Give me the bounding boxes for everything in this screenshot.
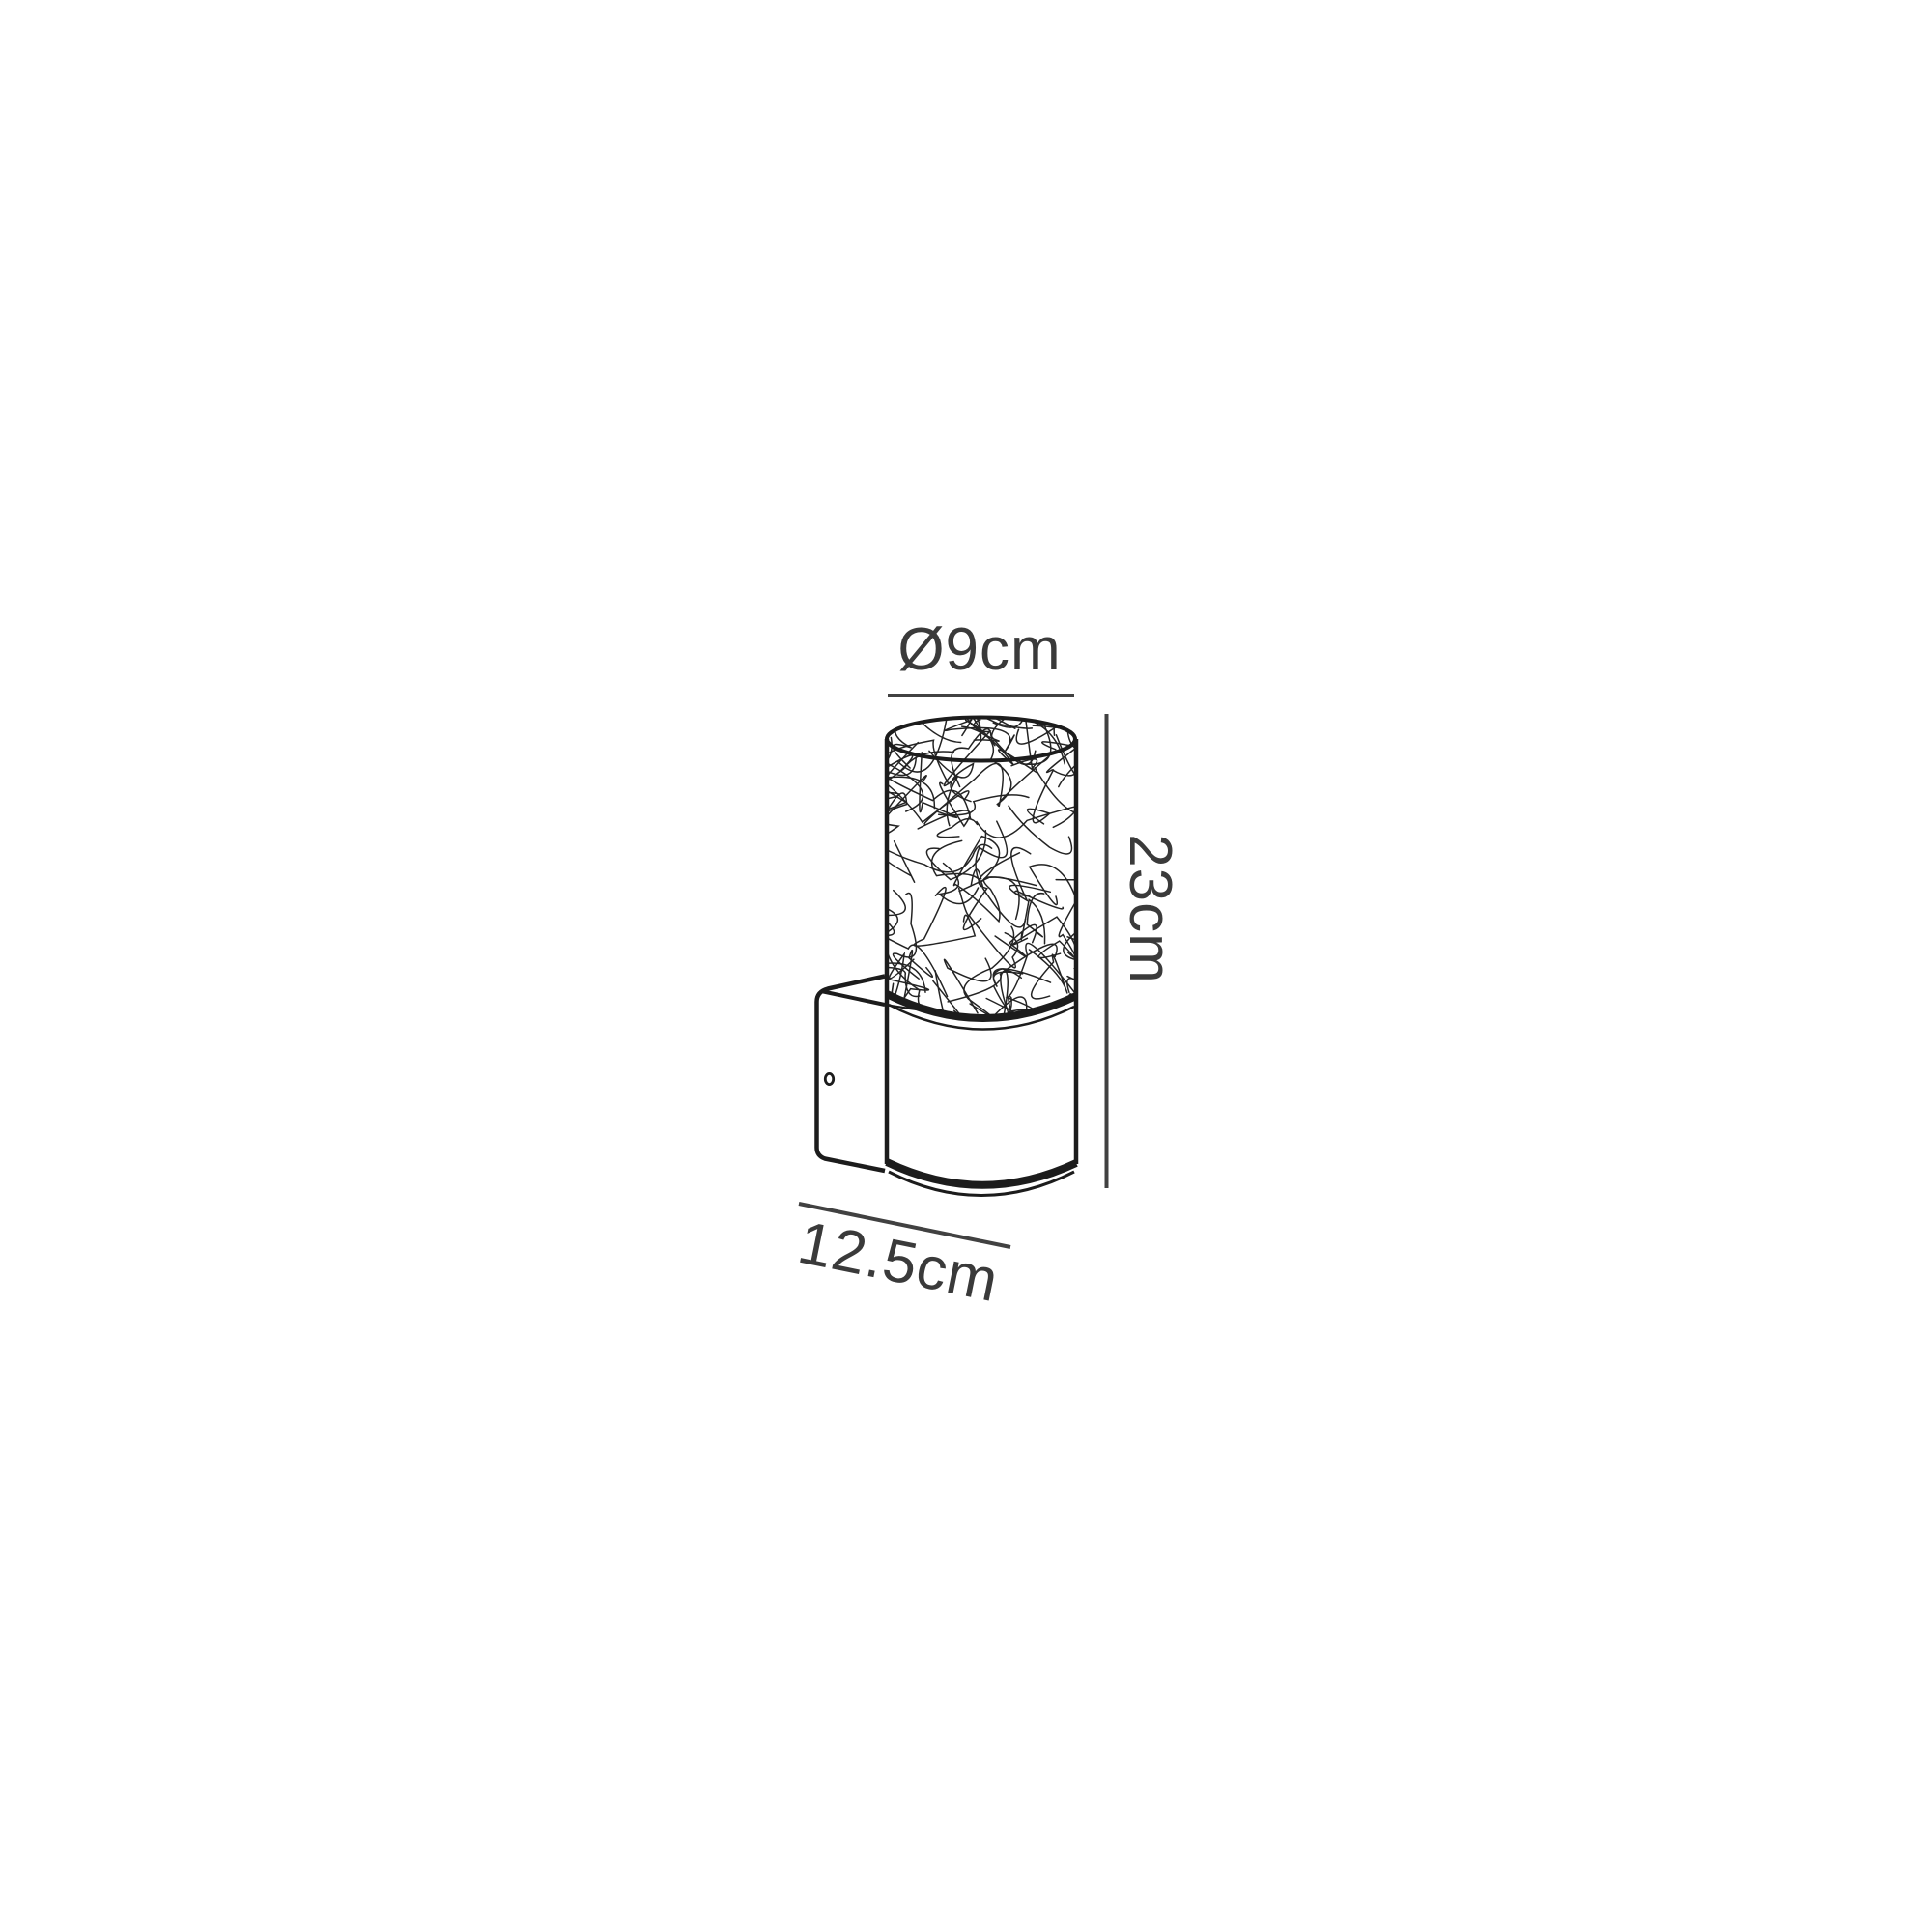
shade-body-junction-ring [887, 994, 1076, 1018]
body-bottom-rim [887, 1162, 1076, 1185]
height-label: 23cm [1120, 834, 1179, 984]
screw-hole [825, 1073, 833, 1084]
wall-mount-plate-top-front-edge [821, 991, 885, 1005]
diameter-label: Ø9cm [897, 620, 1061, 680]
diagram-canvas: Ø9cm 23cm 12.5cm [0, 0, 1932, 1932]
wall-light-line-drawing [0, 0, 1932, 1932]
